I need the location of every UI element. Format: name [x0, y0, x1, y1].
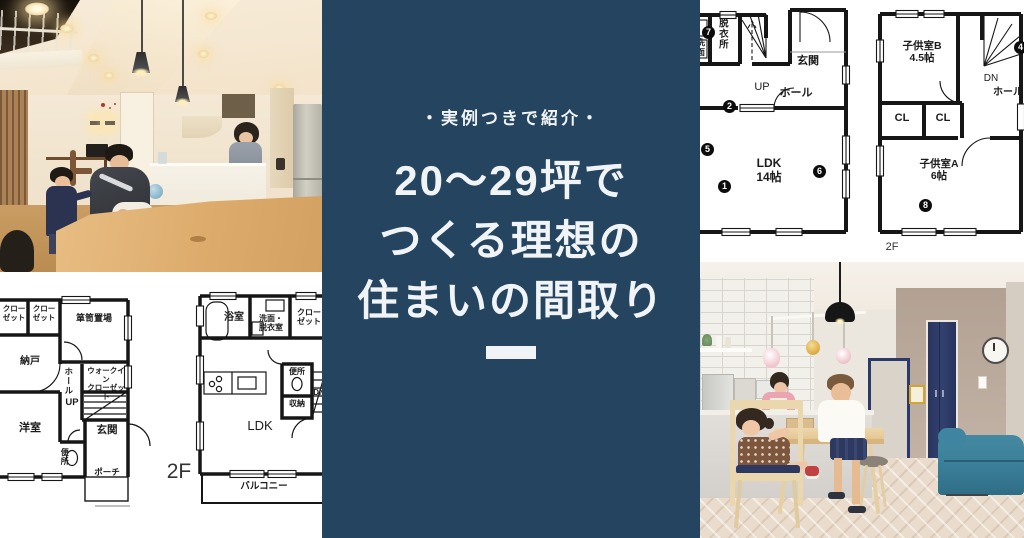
floor-label-2f: 2F [880, 241, 904, 254]
downlight [198, 50, 209, 58]
father2-shirt [818, 400, 865, 442]
floorplan-2-drawing [700, 0, 1024, 262]
floor-label-2f: 2F [162, 460, 196, 484]
girl-pigtail [764, 418, 774, 429]
room-label-balcony: バルコニー [234, 482, 294, 493]
sofa-leg [946, 494, 988, 496]
father2-sandal [848, 506, 866, 513]
room-label-dn: DN [310, 388, 322, 397]
shelf-plant [702, 334, 712, 346]
light-switch [978, 376, 987, 389]
room-label-kids-b: 子供室B 4.5帖 [892, 40, 952, 64]
room-label-cl: CL [929, 112, 957, 125]
room-label-hall: ホール [986, 87, 1024, 99]
room-label-washroom-cut: 洗面 [700, 38, 705, 57]
navy-door-handle [935, 390, 937, 397]
room-label-closet: クロー ゼット [31, 305, 57, 322]
open-shelf [700, 348, 752, 352]
pendant-cord [141, 0, 143, 54]
room-label-entrance: 玄関 [92, 424, 122, 436]
girl-chair-post [798, 400, 803, 506]
mini-pendant-cord [812, 312, 814, 342]
room-label-toilet: 便所 [60, 448, 69, 466]
marker-7: 7 [702, 26, 715, 39]
room-label-closet: クロー ゼット [1, 305, 27, 322]
room-label-bath: 浴室 [218, 312, 250, 324]
photo-living-kitchen [0, 0, 322, 272]
room-label-toilet: 便所 [283, 367, 311, 376]
room-label-nando: 納戸 [14, 356, 46, 368]
title-underline-dash [486, 346, 536, 359]
room-label-ldk: LDK 14帖 [746, 157, 792, 185]
yellow-picture-frame [909, 385, 925, 404]
title-panel: ・実例つきで紹介・ 20〜29坪で つくる理想の 住まいの間取り [322, 0, 700, 538]
room-label-wic: ウォークイン クローゼット [84, 367, 128, 402]
downlight [88, 54, 99, 62]
subtitle-badge: ・実例つきで紹介・ [322, 104, 700, 129]
father2-sandal [828, 492, 845, 499]
room-label-kids-a: 子供室A 6帖 [908, 158, 970, 182]
black-stool [0, 230, 34, 272]
title-line-2: つくる理想の [322, 207, 700, 268]
room-label-cl: CL [888, 112, 916, 125]
room-label-tansu: 箪笥置場 [70, 313, 118, 323]
counter-glass [158, 152, 167, 164]
room-label-hall: ホール [776, 87, 816, 100]
marker-2: 2 [723, 100, 736, 113]
wall-clock [982, 337, 1009, 364]
cabinet-alcove [222, 94, 255, 118]
room-label-entrance: 玄関 [792, 55, 824, 68]
marker-8: 8 [919, 199, 932, 212]
room-label-storage: 収納 [283, 399, 311, 408]
shelf-bottle [716, 336, 722, 347]
mini-pendant-pink [836, 348, 851, 364]
loft-fascia [0, 50, 82, 70]
girl-face [742, 420, 760, 436]
kettle [276, 158, 285, 170]
girl-chair-back [730, 400, 803, 409]
floorplan-2: 洗面 脱衣所 玄関 UP ホール LDK 14帖 子供室B 4.5帖 DN ホー… [700, 0, 1024, 262]
title-line-1: 20〜29坪で [322, 147, 700, 208]
desk [46, 157, 110, 160]
father2-leg [852, 460, 860, 504]
sconce-light [90, 121, 100, 125]
girl-shoe [805, 466, 819, 476]
photo-dining-family [700, 262, 1024, 538]
room-label-washroom: 洗面・ 脱衣室 [252, 314, 290, 332]
downlight [24, 2, 50, 16]
marker-5: 5 [701, 143, 714, 156]
room-label-hall: ホール [63, 367, 73, 396]
marker-4: 4 [1014, 41, 1024, 54]
girl-chair-post [730, 400, 735, 506]
title-line-3: 住まいの間取り [322, 267, 700, 328]
glass-door-navy-frame [868, 358, 910, 462]
marker-1: 1 [718, 180, 731, 193]
mini-pendant-pink [763, 348, 780, 368]
room-label-up: UP [750, 81, 774, 94]
downlight [205, 12, 217, 20]
sconce-light [105, 121, 115, 125]
room-label-west-room: 洋室 [12, 422, 48, 435]
sofa-cushion-line [944, 460, 1024, 462]
blog-banner: クロー ゼット クロー ゼット 箪笥置場 納戸 ホール ウォークイン クローゼッ… [0, 0, 1024, 538]
father2-shorts [830, 438, 867, 460]
black-pendant-glow [835, 318, 845, 325]
room-label-porch: ポーチ [90, 468, 124, 478]
pendant-glow [132, 68, 150, 77]
sofa-arm [938, 428, 966, 446]
floorplan-1: クロー ゼット クロー ゼット 箪笥置場 納戸 ホール ウォークイン クローゼッ… [0, 272, 322, 538]
room-label-closet: クロー ゼット [294, 308, 322, 326]
globe [148, 184, 163, 199]
room-label-dn: DN [979, 73, 1003, 85]
table-knot [190, 236, 206, 242]
desk-chair-seat [70, 168, 92, 174]
downlight [60, 24, 74, 33]
room-label-up: UP [62, 398, 82, 409]
tall-cabinet [270, 88, 294, 188]
mini-pendant-gold [806, 340, 820, 355]
pendant-glow [175, 98, 190, 106]
clock-hand [993, 343, 995, 351]
father2-leg [834, 458, 842, 494]
marker-6: 6 [813, 165, 826, 178]
wall-birds-decor [101, 103, 105, 107]
pendant-cord [182, 0, 184, 88]
room-label-ldk: LDK [240, 419, 280, 434]
fridge-divider [293, 178, 322, 180]
black-pendant-cord [839, 262, 841, 306]
mini-pendant-cord [771, 316, 773, 350]
room-label-dressing: 脱衣所 [716, 18, 727, 50]
downlight [104, 72, 114, 79]
